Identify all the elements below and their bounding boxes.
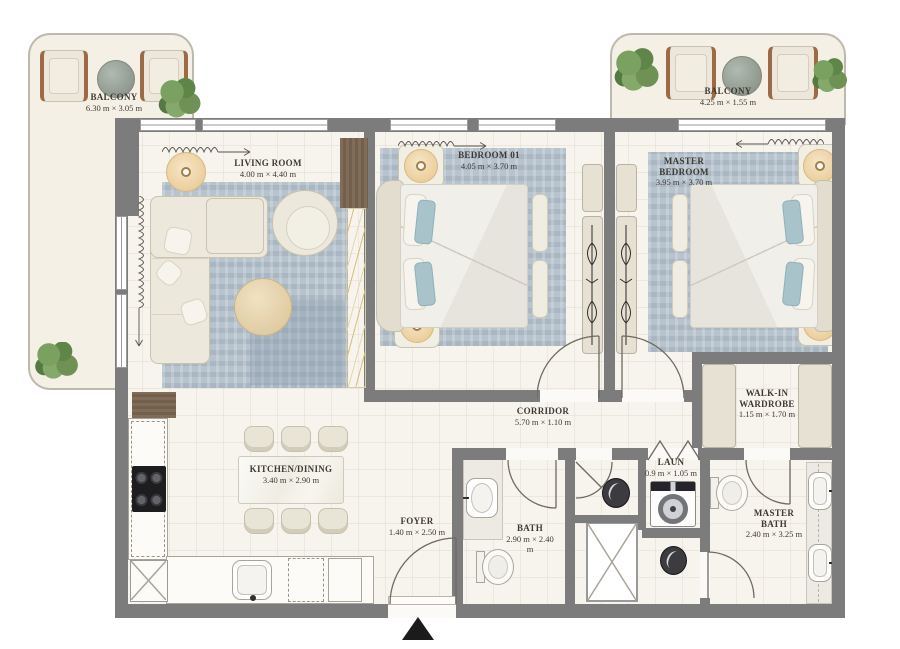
dining-chair: [281, 508, 311, 534]
dining-chair: [318, 426, 348, 452]
cooktop-icon: [132, 466, 166, 512]
door-swing-icon: [574, 458, 616, 502]
entrance-marker-icon: [402, 617, 434, 640]
sink-bowl: [237, 565, 267, 595]
wall-corridor-south: [612, 448, 648, 460]
toilet-icon: [476, 548, 516, 584]
hanger-rail-icon: [583, 219, 601, 351]
walkin-wardrobe-unit: [798, 364, 832, 448]
dining-chair: [318, 508, 348, 534]
walkin-wardrobe-unit: [702, 364, 736, 448]
shaft: [586, 522, 638, 602]
shaft-x-icon: [131, 561, 166, 600]
wall-bottom: [115, 604, 845, 618]
dining-chair: [244, 508, 274, 534]
wall-walkin-north: [692, 352, 845, 364]
armchair-seat: [777, 54, 809, 92]
foot-bench: [532, 194, 548, 252]
balcony-slider-window: [140, 119, 196, 131]
wall-corridor-south: [698, 448, 744, 460]
bifold-door-icon: [648, 438, 700, 462]
washer-icon: [650, 481, 696, 527]
toilet-icon: [710, 474, 748, 510]
armchair-seat: [49, 58, 79, 94]
toilet-bowl-inner: [722, 481, 742, 505]
door-swing-icon: [744, 458, 792, 506]
curtain-icon: [398, 140, 490, 152]
wardrobe-upper-unit: [582, 164, 603, 212]
wall-bed1-master: [604, 132, 615, 394]
plant-icon: [34, 342, 80, 384]
basin-icon: [808, 544, 832, 582]
balcony-armchair: [768, 46, 818, 100]
balcony-armchair: [40, 50, 88, 102]
foot-bench: [672, 194, 688, 252]
curtain-icon: [162, 146, 254, 158]
wardrobe-upper-unit: [616, 164, 637, 212]
door-swing-icon: [618, 334, 684, 404]
lamp-icon: [404, 149, 438, 183]
sink-faucet: [250, 595, 256, 601]
door-swing-icon: [704, 550, 758, 602]
sofa-seam: [150, 258, 208, 259]
hanger-rail-icon: [617, 219, 635, 351]
wall-wc-south: [575, 515, 638, 523]
corner-cabinet: [130, 560, 168, 602]
toilet-icon: [660, 546, 687, 575]
dining-table: [238, 456, 344, 504]
coffee-table: [234, 278, 292, 336]
plant-icon: [812, 58, 848, 98]
dining-chair: [244, 426, 274, 452]
bedroom1-window: [478, 119, 556, 131]
sofa-chaise-cushion: [206, 198, 264, 254]
round-armchair-seat: [286, 206, 330, 250]
dining-chair: [281, 426, 311, 452]
balcony-armchair: [666, 46, 716, 100]
living-side-window: [116, 294, 127, 368]
washer-drum: [658, 494, 688, 524]
entry-opening: [388, 604, 456, 618]
shaft-x-icon: [588, 524, 636, 600]
bedroom1-window: [390, 119, 468, 131]
basin-bowl: [471, 483, 493, 513]
living-window: [202, 119, 328, 131]
basin-icon: [808, 472, 832, 510]
basin-bowl: [813, 549, 827, 577]
foot-bench: [672, 260, 688, 318]
tv-wall-marble-panel: [346, 208, 366, 388]
wall-laundry-mbath: [700, 460, 710, 552]
curtain-icon: [732, 138, 824, 150]
washer-control-panel: [651, 482, 695, 491]
plant-icon: [614, 48, 660, 98]
wall-corridor-south: [452, 448, 506, 460]
door-swing-icon: [537, 334, 603, 404]
wall-wc-laundry: [638, 460, 646, 530]
foot-bench: [532, 260, 548, 318]
dishwasher: [328, 558, 362, 602]
door-swing-icon: [506, 458, 558, 510]
basin-bowl: [813, 477, 827, 505]
basin-icon: [466, 478, 498, 518]
upper-cabinet-outline: [288, 558, 324, 602]
wall-right: [832, 118, 845, 618]
armchair-seat: [675, 54, 707, 92]
sink-icon: [232, 560, 272, 600]
curtain-icon: [132, 196, 146, 356]
balcony-round-table: [97, 60, 135, 98]
toilet-bowl-inner: [488, 555, 508, 579]
balcony-round-table: [722, 56, 762, 96]
wall-laundry-south: [642, 528, 700, 538]
living-side-window: [116, 216, 127, 290]
toilet-bowl: [482, 549, 514, 585]
floor-plan: BALCONY 6.30 m × 3.05 m BALCONY 4.25 m ×…: [0, 0, 900, 649]
floor-lamp-icon: [166, 152, 206, 192]
master-window: [678, 119, 826, 131]
wall-corridor-south: [790, 448, 845, 460]
tv-wall-wood-panel: [340, 138, 368, 208]
entry-door-swing-icon: [388, 534, 460, 606]
kitchen-wood-cabinet: [132, 392, 176, 418]
wall-corridor-north: [364, 390, 540, 402]
